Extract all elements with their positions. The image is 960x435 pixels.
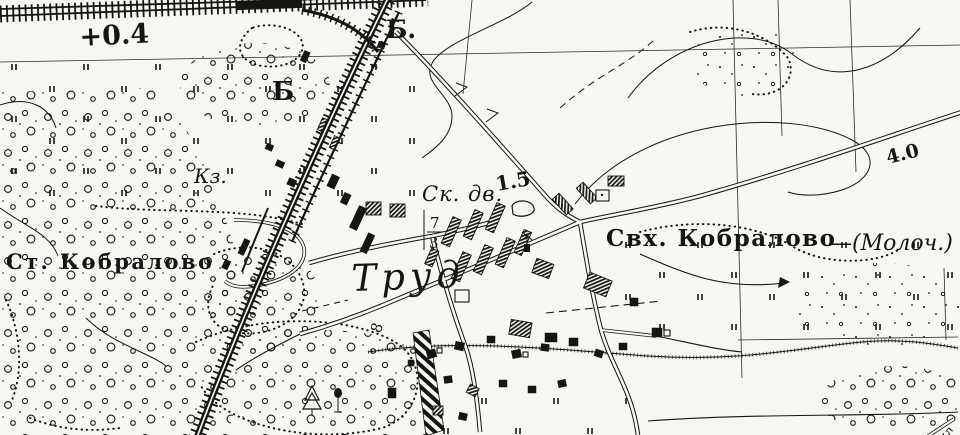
house — [408, 360, 414, 366]
station-name-label: Ст. Кобралово — [6, 249, 214, 274]
village-name-label: Труд — [351, 253, 466, 300]
open-yard — [523, 352, 528, 357]
house — [454, 341, 464, 351]
building — [630, 298, 638, 306]
house — [487, 336, 495, 343]
barn-building — [390, 204, 405, 217]
scrub-area-southeast — [795, 263, 960, 347]
spot-height-label: +0.4 — [79, 18, 150, 53]
railway-booth-mid-label: Б — [272, 77, 294, 107]
pond — [512, 201, 534, 216]
house — [540, 343, 549, 351]
forest-area-south-center — [235, 330, 425, 435]
barn-building — [366, 202, 381, 215]
sovkhoz-name-label: Свх. Кобралово — [606, 225, 836, 252]
house — [499, 380, 507, 387]
open-yard — [664, 330, 670, 336]
open-yard — [437, 348, 442, 353]
building — [545, 333, 557, 342]
barn-building — [433, 406, 443, 415]
cattle-yard-label: Ск. дв. — [422, 182, 503, 206]
house — [511, 349, 521, 359]
house — [557, 379, 566, 388]
fraction-numerator-label: 7 — [430, 214, 440, 232]
sovkhoz-type-label: —(Молоч.) — [830, 231, 953, 256]
map-screenshot: +0.4 Б. Б Кз. Ск. дв. 1.5 7 3 Ст. Кобрал… — [0, 0, 960, 435]
barn-building — [608, 176, 624, 186]
barn-building — [509, 319, 532, 337]
house — [569, 338, 578, 346]
building — [652, 328, 662, 337]
yard-dot — [601, 194, 603, 196]
barracks-label: Кз. — [193, 164, 227, 188]
windmill-base — [524, 244, 530, 252]
map-canvas: +0.4 Б. Б Кз. Ск. дв. 1.5 7 3 Ст. Кобрал… — [0, 0, 960, 435]
fraction-denominator-label: 3 — [429, 234, 439, 252]
house — [619, 343, 627, 350]
house — [458, 412, 467, 421]
house — [444, 375, 453, 383]
house — [528, 386, 536, 393]
railway-booth-top-label: Б. — [386, 15, 416, 44]
house — [388, 388, 396, 398]
